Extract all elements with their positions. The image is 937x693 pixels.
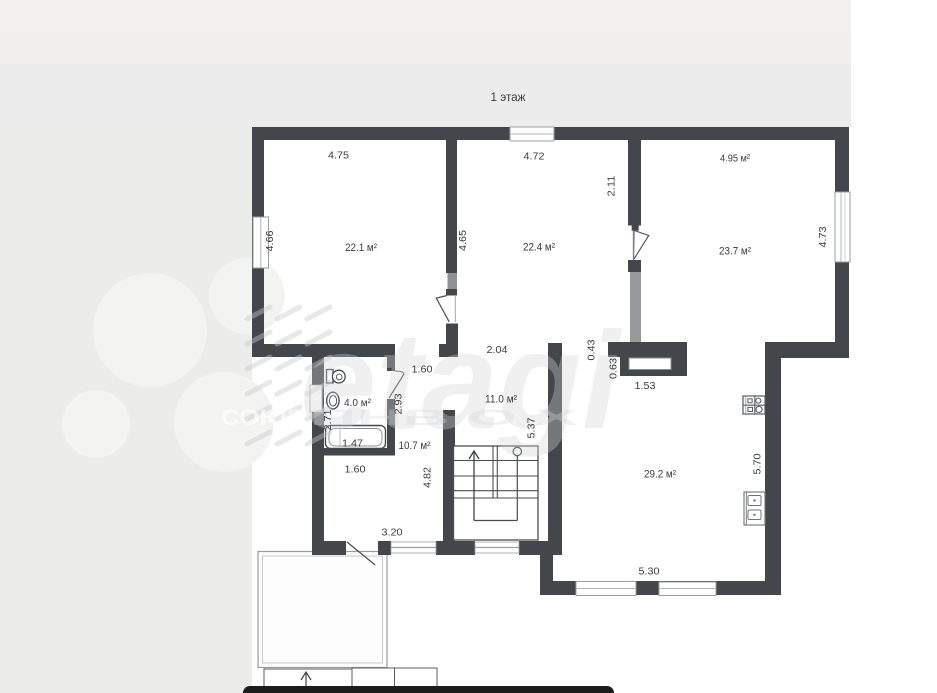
svg-text:5.37: 5.37 — [527, 417, 538, 438]
svg-text:1.60: 1.60 — [345, 465, 366, 476]
svg-text:10.7 м²: 10.7 м² — [399, 440, 431, 452]
svg-text:0.63: 0.63 — [609, 358, 620, 379]
svg-text:5.70: 5.70 — [753, 453, 764, 474]
svg-text:1.60: 1.60 — [412, 365, 433, 376]
svg-text:23.7 м²: 23.7 м² — [719, 246, 751, 258]
svg-text:4.65: 4.65 — [458, 230, 469, 251]
svg-text:2.93: 2.93 — [394, 393, 405, 414]
svg-text:1.47: 1.47 — [342, 439, 363, 450]
svg-text:22.4 м²: 22.4 м² — [523, 242, 555, 254]
svg-text:1 этаж: 1 этаж — [491, 90, 526, 104]
svg-text:5.30: 5.30 — [639, 567, 660, 578]
svg-text:11.0 м²: 11.0 м² — [485, 394, 517, 406]
svg-text:СОЮЗ: СОЮЗ — [221, 405, 303, 430]
svg-text:4.73: 4.73 — [818, 226, 829, 247]
svg-text:1.53: 1.53 — [635, 381, 656, 392]
svg-text:4.75: 4.75 — [328, 151, 349, 162]
svg-text:4.0 м²: 4.0 м² — [344, 397, 371, 409]
svg-text:22.1 м²: 22.1 м² — [345, 242, 377, 254]
svg-text:3.20: 3.20 — [382, 528, 403, 539]
svg-text:etagi: etagi — [300, 304, 623, 458]
svg-text:4.66: 4.66 — [265, 230, 276, 251]
svg-text:2.04: 2.04 — [487, 345, 508, 356]
svg-text:4.72: 4.72 — [524, 152, 545, 163]
svg-text:29.2 м²: 29.2 м² — [644, 469, 676, 481]
svg-text:2.11: 2.11 — [607, 175, 618, 196]
svg-text:4.82: 4.82 — [423, 467, 434, 488]
svg-text:0.43: 0.43 — [587, 339, 598, 360]
svg-text:2.71: 2.71 — [323, 409, 334, 430]
svg-text:4.95 м²: 4.95 м² — [720, 154, 751, 165]
